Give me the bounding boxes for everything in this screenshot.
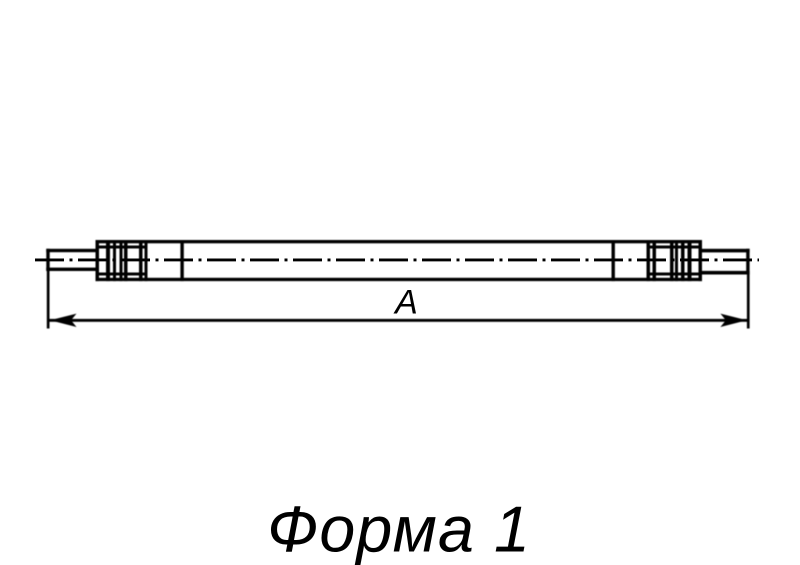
svg-text:A: A	[393, 284, 418, 322]
svg-text:Форма 1: Форма 1	[267, 494, 531, 565]
